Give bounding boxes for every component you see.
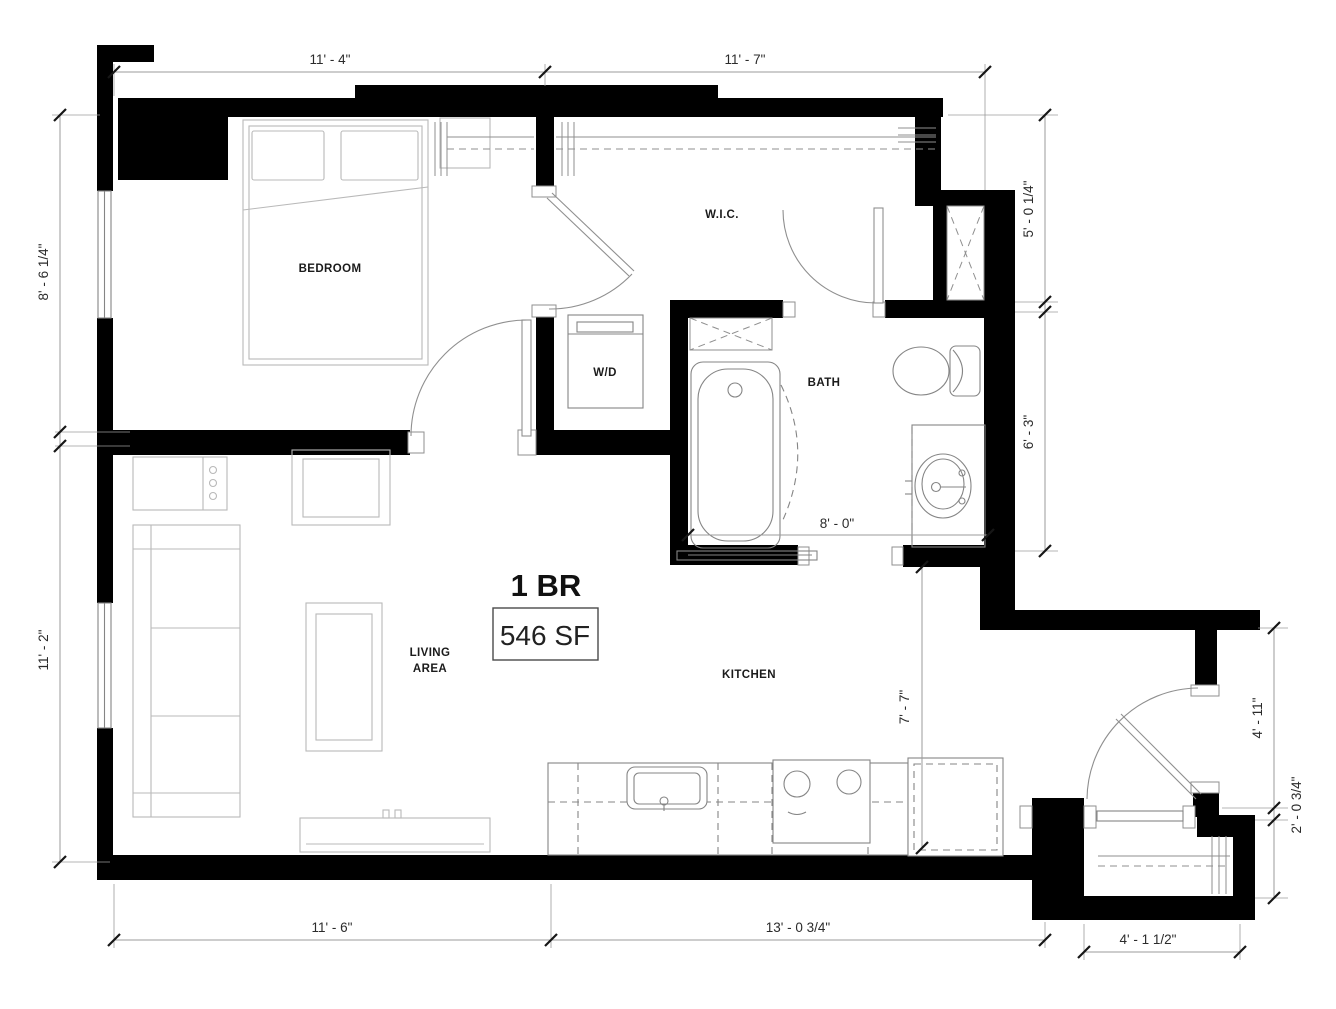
- unit-area-label: 546 SF: [500, 620, 590, 651]
- dim-right-closet: 2' - 0 3/4": [1289, 776, 1304, 833]
- unit-title-block: 1 BR 546 SF: [493, 568, 598, 660]
- vanity-sink: [905, 425, 985, 547]
- dim-left-upper: 8' - 6 1/4": [36, 243, 51, 300]
- dim-kitchen-interior: 7' - 7": [897, 690, 912, 725]
- dim-top-right: 11' - 7": [725, 52, 766, 67]
- floor-plan-page: 11' - 4" 11' - 7" 8' - 6 1/4" 11' - 2" 5…: [0, 0, 1336, 1009]
- label-bedroom: BEDROOM: [299, 263, 362, 275]
- entry-door: [1087, 688, 1201, 799]
- tv-console: [300, 810, 490, 852]
- label-kitchen: KITCHEN: [722, 669, 776, 681]
- doors: [411, 193, 1201, 821]
- unit-type-title: 1 BR: [511, 568, 582, 603]
- label-bath: BATH: [808, 377, 841, 389]
- dim-bottom-left: 11' - 6": [312, 920, 353, 935]
- floor-plan-drawing: 11' - 4" 11' - 7" 8' - 6 1/4" 11' - 2" 5…: [0, 0, 1336, 1009]
- dim-bath-interior: 8' - 0": [820, 516, 855, 531]
- kitchen-sink: [627, 767, 707, 811]
- dim-left-lower: 11' - 2": [36, 629, 51, 670]
- bathtub: [691, 362, 798, 548]
- entry-closet-saddle: [1097, 811, 1183, 821]
- corner-shelf-niche: [947, 206, 984, 300]
- window-living: [98, 603, 111, 728]
- dim-right-wic: 5' - 0 1/4": [1021, 180, 1036, 237]
- armchair: [292, 450, 390, 525]
- washer-dryer-unit: [568, 315, 643, 408]
- coffee-table: [306, 603, 382, 751]
- label-living-line1: LIVING: [410, 647, 451, 659]
- dim-right-entry: 4' - 11": [1250, 697, 1265, 738]
- dresser: [133, 457, 227, 510]
- sofa: [133, 525, 240, 817]
- cooktop: [773, 760, 870, 843]
- label-living-line2: AREA: [413, 663, 447, 675]
- dim-top-left: 11' - 4": [310, 52, 351, 67]
- dim-right-bath: 6' - 3": [1021, 415, 1036, 450]
- door-frames: [408, 186, 1219, 828]
- label-wic: W.I.C.: [705, 209, 739, 221]
- toilet: [893, 346, 980, 396]
- linen-shelf: [690, 318, 772, 350]
- label-wd: W/D: [593, 367, 617, 379]
- window-bedroom: [98, 191, 111, 318]
- dim-bottom-middle: 13' - 0 3/4": [766, 920, 831, 935]
- bedroom-hall-door: [547, 193, 634, 309]
- living-bedroom-door: [411, 320, 531, 436]
- bed: [243, 120, 428, 365]
- dim-bottom-entry: 4' - 1 1/2": [1120, 932, 1177, 947]
- wic-bath-door: [783, 208, 883, 303]
